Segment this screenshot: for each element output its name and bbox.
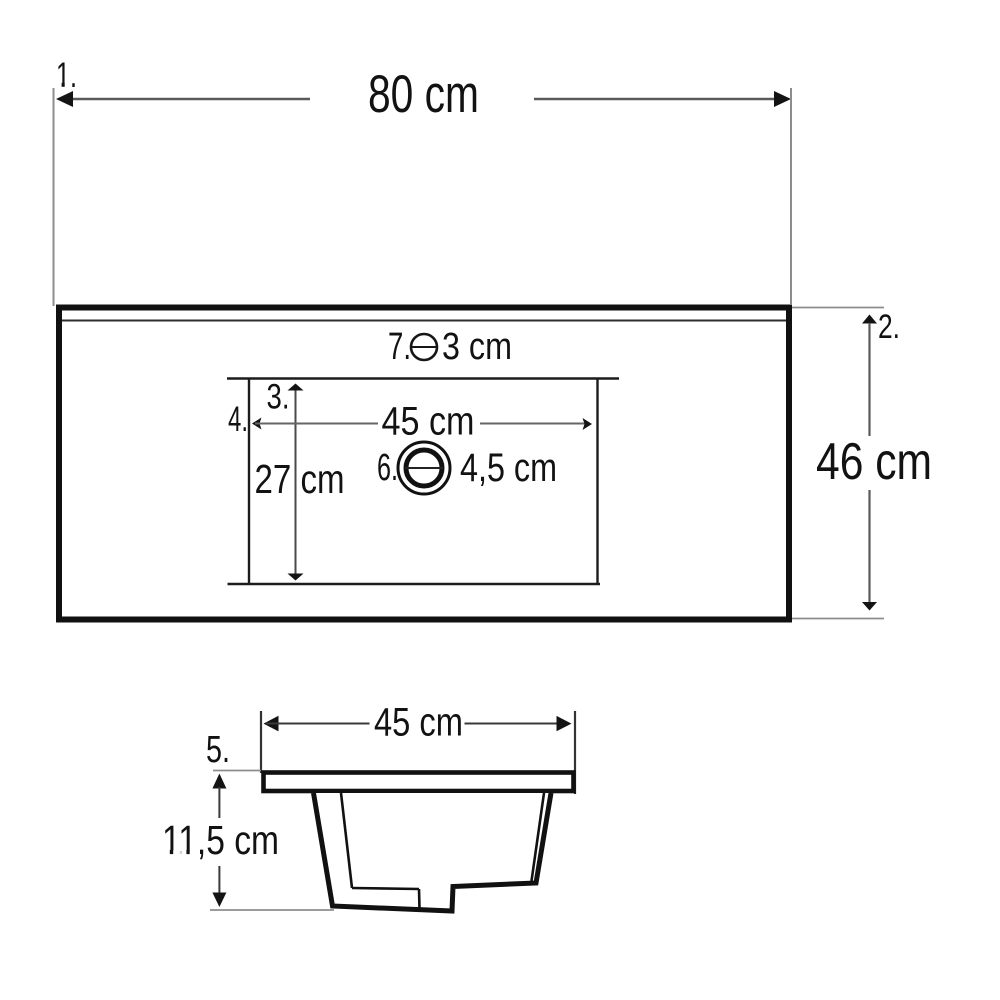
svg-text:4,5 cm: 4,5 cm xyxy=(460,446,557,490)
svg-text:2.: 2. xyxy=(878,308,900,346)
svg-text:45 cm: 45 cm xyxy=(374,701,463,745)
svg-text:5.: 5. xyxy=(206,729,230,771)
svg-text:4.: 4. xyxy=(228,400,248,439)
svg-text:11,5 cm: 11,5 cm xyxy=(162,817,279,863)
svg-text:45 cm: 45 cm xyxy=(382,400,475,444)
svg-text:80 cm: 80 cm xyxy=(368,65,479,124)
svg-text:27 cm: 27 cm xyxy=(255,456,345,502)
svg-text:6.: 6. xyxy=(377,447,398,489)
svg-text:7.: 7. xyxy=(388,326,411,368)
svg-text:3 cm: 3 cm xyxy=(442,326,512,368)
svg-text:3.: 3. xyxy=(267,378,290,417)
svg-text:46 cm: 46 cm xyxy=(816,433,932,491)
svg-text:1.: 1. xyxy=(56,56,77,95)
